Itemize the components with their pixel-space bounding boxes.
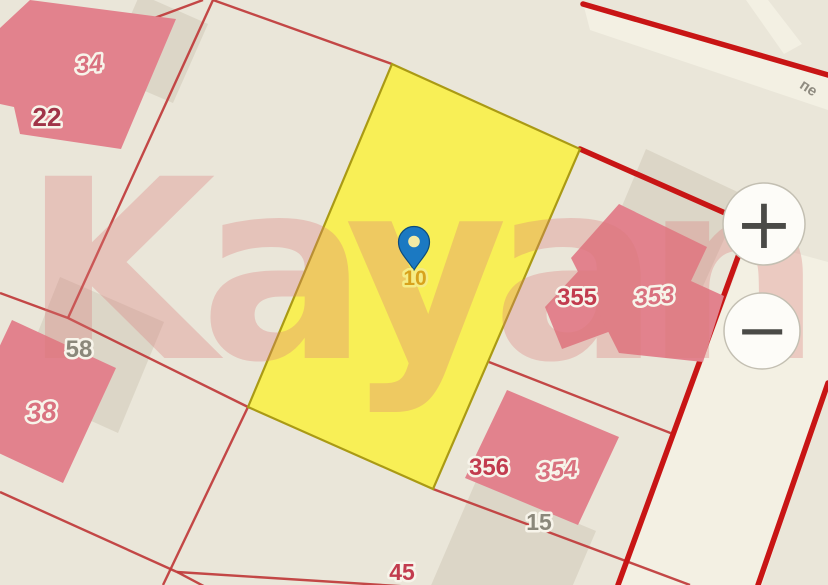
map-widget: Kayan 34 22 58 38 355 353 356 354 15 45 …: [0, 0, 828, 585]
map-canvas[interactable]: Kayan 34 22 58 38 355 353 356 354 15 45 …: [0, 0, 828, 585]
label-land-15: 15: [526, 509, 552, 535]
label-parcel-356: 356: [469, 454, 509, 481]
label-building-34: 34: [75, 50, 104, 80]
pin-hole: [408, 236, 420, 248]
label-building-353: 353: [633, 281, 676, 311]
label-parcel-45: 45: [389, 559, 415, 585]
label-parcel-355: 355: [557, 284, 597, 311]
zoom-out-button[interactable]: −: [724, 293, 800, 369]
zoom-in-button[interactable]: +: [723, 183, 805, 265]
minus-icon: −: [735, 294, 789, 368]
label-land-58: 58: [66, 336, 93, 363]
plus-icon: +: [735, 183, 794, 265]
label-selected-parcel: 10: [403, 267, 426, 290]
label-building-38: 38: [25, 396, 57, 428]
label-building-354: 354: [536, 455, 578, 485]
label-parcel-22: 22: [33, 102, 62, 132]
